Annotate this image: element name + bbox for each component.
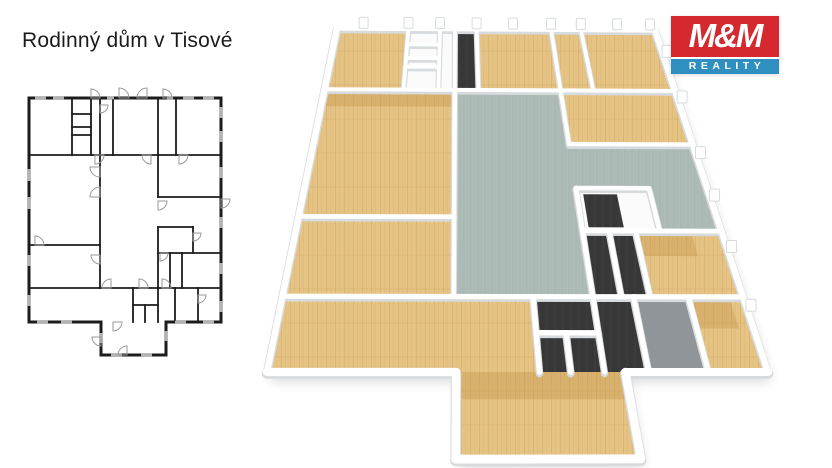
wall-cap [710,189,720,201]
room-wood [561,90,642,144]
room-wood [282,216,454,296]
closet-dark [583,194,624,227]
wall-cap [746,299,756,311]
wall-cap [472,18,481,29]
wall-3d [454,90,455,297]
wall-cap [547,18,556,29]
wall-3d [569,144,693,145]
wall-cap [646,19,655,30]
wall-cap [509,18,518,29]
wall-cap [359,17,368,28]
room-wood [477,29,561,91]
wall-3d [337,28,655,30]
wall-cap [436,18,445,29]
room-wood [267,296,454,372]
wall-cap [404,17,413,28]
wall-3d [477,29,479,90]
logo-mm-text: M&M [671,16,779,57]
room-wood [453,297,539,373]
wall-3d [282,296,592,297]
wall-cap [613,19,622,30]
mm-reality-logo: M&M REALITY [671,16,779,74]
wall-cap [727,241,737,253]
wall-3d [325,89,675,91]
wall-cap [696,147,706,159]
wall-cap [576,19,585,30]
listing-image: Rodinný dům v Tisové M&M REALITY [0,0,832,468]
logo-reality-text: REALITY [671,59,779,74]
wall-cap [677,91,687,103]
